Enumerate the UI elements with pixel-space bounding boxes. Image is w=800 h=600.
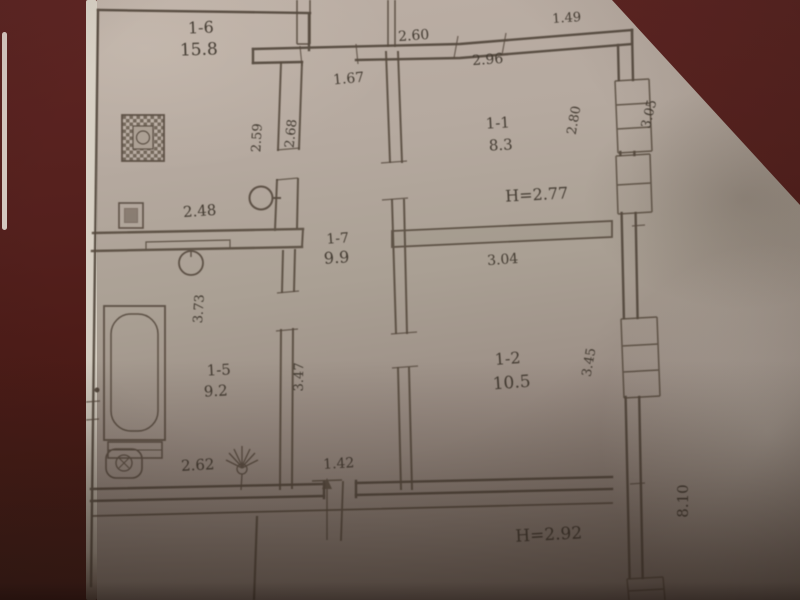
dim-top-right: 1.49 (552, 10, 582, 27)
window-pier-icon (616, 154, 652, 214)
dim-room12-east: 3.45 (580, 347, 600, 378)
dim-room11-top: 2.96 (472, 51, 504, 69)
interior-walls (92, 52, 612, 600)
dim-bath-west: 3.73 (191, 294, 208, 324)
window-lower-icon (627, 577, 665, 600)
kitchen-counter-icon (119, 203, 143, 228)
dim-room11-east: 2.80 (565, 105, 585, 136)
room-1-1-height-label: H=2.77 (505, 183, 569, 205)
bathtub-icon (95, 306, 166, 458)
windows (615, 79, 665, 600)
dim-hall-top: 1.67 (332, 70, 364, 89)
room-1-2-id-label: 1-2 (494, 348, 521, 369)
room-1-5-id-label: 1-5 (206, 360, 231, 379)
room-1-1-area-label: 8.3 (488, 135, 513, 154)
dim-kitchen-east-a: 2.59 (249, 123, 265, 153)
dim-room12-top: 3.04 (487, 251, 519, 269)
room-1-5-area-label: 9.2 (203, 381, 228, 400)
outer-walls (91, 10, 643, 586)
window-room-1-2-icon (621, 317, 660, 398)
floor-plan-drawing: 1-6 15.8 1-1 8.3 H=2.77 1-7 9.9 1-2 10.5… (0, 0, 800, 600)
room-1-6-id-label: 1-6 (188, 18, 214, 38)
dim-bath-south: 2.62 (181, 455, 215, 475)
shower-icon (226, 446, 258, 490)
room-1-1-id-label: 1-1 (485, 113, 510, 132)
dim-bath-east: 3.47 (292, 362, 308, 391)
lower-room-height-label: H=2.92 (515, 523, 583, 546)
room-1-6-area-label: 15.8 (180, 39, 219, 60)
dim-kitchen-south: 2.48 (182, 201, 217, 221)
boiler-icon (179, 251, 203, 275)
room-1-2-area-label: 10.5 (492, 372, 531, 395)
room-1-7-id-label: 1-7 (326, 230, 350, 248)
stove-icon (122, 115, 164, 161)
dim-top-left: 2.60 (398, 27, 430, 45)
vent-stack-icon (388, 0, 395, 47)
dim-kitchen-east-b: 2.68 (283, 118, 301, 148)
dim-hall-south: 1.42 (323, 455, 355, 473)
dim-east-total: 8.10 (674, 484, 692, 517)
floor-plan-photo: 1-6 15.8 1-1 8.3 H=2.77 1-7 9.9 1-2 10.5… (0, 0, 800, 600)
toilet-icon (106, 449, 142, 478)
door-jambs (86, 33, 645, 484)
room-1-7-area-label: 9.9 (323, 247, 350, 268)
